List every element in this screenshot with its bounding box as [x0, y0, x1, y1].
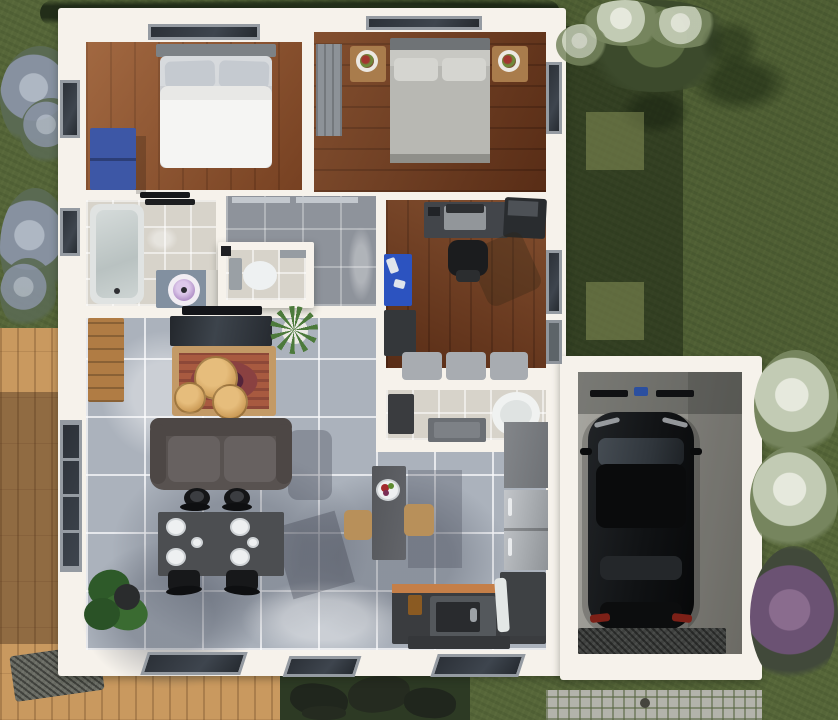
fruit-plum — [383, 490, 389, 496]
sofa-back — [150, 418, 292, 436]
desk-printer-top — [446, 204, 484, 213]
garage-entry-grate — [578, 628, 726, 654]
sofa-shadow — [288, 430, 332, 500]
corner-cabinet-top — [508, 200, 539, 217]
window-bottom-3 — [430, 654, 525, 677]
nightstand-right-flowers — [502, 54, 516, 68]
bed2-pillow-right — [442, 58, 486, 81]
tree-shade — [700, 18, 762, 72]
window-right-office — [546, 250, 562, 314]
plate-small-1 — [191, 537, 203, 548]
window-left-bedroom1 — [60, 80, 80, 138]
side-table-dark — [384, 310, 416, 356]
fruit-lime — [388, 483, 394, 489]
plant-stand-leaves — [270, 306, 318, 354]
car-mirror-right — [690, 448, 702, 455]
dining-chair-top-2-back — [222, 503, 252, 511]
sofa-seat-right — [224, 436, 276, 482]
plate-4 — [230, 548, 250, 566]
bed1-pillow-right — [219, 60, 270, 89]
wc-shelf — [280, 250, 306, 258]
window-light-on-grass-1 — [586, 112, 644, 170]
car-windshield — [598, 438, 684, 466]
window-top-bedroom2 — [366, 16, 482, 30]
bush-left-2b — [0, 258, 56, 330]
window-left-living — [60, 420, 82, 572]
dresser-drawer-line — [90, 158, 136, 161]
toilet-tank — [229, 258, 242, 290]
tool-bar-1 — [590, 390, 628, 397]
kitchen-faucet — [470, 608, 477, 622]
bush-right-white-2 — [750, 446, 838, 554]
vanity-side — [206, 270, 218, 308]
car-mirror-left — [580, 448, 592, 455]
sink-drain — [181, 287, 187, 293]
tv-screen — [182, 306, 262, 315]
dresser-shadow — [136, 136, 146, 194]
bed2-footboard — [390, 154, 490, 163]
office-chair-base — [456, 270, 480, 282]
bench-cushion-1 — [402, 352, 442, 380]
shower-tray-inner — [434, 422, 480, 438]
nightstand-left-flowers — [360, 54, 374, 68]
tv-console — [170, 316, 272, 346]
window-left-bathroom — [60, 208, 80, 256]
bookshelf — [88, 318, 124, 402]
bush-right-purple — [750, 546, 838, 688]
bench-cushion-2 — [446, 352, 486, 380]
wardrobe — [316, 44, 342, 136]
toilet-bowl — [243, 261, 277, 290]
dining-chair-top-1-seat — [190, 491, 204, 502]
hallway-beam-1 — [232, 197, 290, 203]
dining-chair-top-2-seat — [230, 491, 244, 502]
plate-1 — [166, 518, 186, 536]
bed1-duvet-fold — [160, 86, 272, 100]
fridge-handle-2 — [508, 538, 512, 556]
laundry-unit — [388, 394, 414, 434]
bed2-pillow-left — [394, 58, 438, 81]
window-bottom-1 — [140, 652, 247, 675]
bar-stool-left — [344, 510, 372, 540]
tool-bar-2 — [656, 390, 694, 397]
towel-rail-1 — [140, 192, 190, 198]
car-roof — [596, 464, 686, 528]
hallway-sunlight — [348, 226, 374, 302]
hallway-beam-2 — [296, 197, 358, 203]
sofa-arm-right — [276, 424, 292, 484]
coffee-table-2 — [174, 382, 206, 414]
window-top-bedroom1 — [148, 24, 260, 40]
bathroom-sunpatch — [146, 226, 178, 252]
cobblestone-driveway — [546, 690, 762, 720]
bathtub-drain — [114, 288, 120, 294]
window-bottom-2 — [283, 656, 362, 677]
car-trunk — [600, 602, 682, 628]
car-rear-window — [600, 556, 682, 580]
tree-blossom-3 — [556, 24, 608, 66]
window-right-bedroom2 — [546, 62, 562, 134]
towel-rail-2 — [145, 199, 195, 205]
wc-corner-box — [221, 246, 231, 256]
fridge-door-split — [504, 528, 548, 531]
sofa-seat-left — [168, 436, 220, 482]
cutting-board — [408, 595, 422, 615]
blinds-right-office — [546, 320, 562, 364]
desk-item — [428, 207, 440, 216]
dining-chair-top-1-back — [180, 503, 210, 511]
living-sunlight-1 — [240, 580, 410, 660]
coffee-table-3 — [212, 384, 248, 420]
sofa-arm-left — [150, 424, 166, 484]
plate-small-2 — [247, 537, 259, 548]
window-light-on-grass-2 — [586, 282, 644, 340]
driveway-drain-dot — [640, 698, 650, 708]
bench-cushion-3 — [490, 352, 528, 380]
bathtub-inner — [96, 210, 138, 298]
kitchen-mat — [408, 636, 510, 649]
floorplan-stage — [0, 0, 838, 720]
bar-stool-right — [404, 504, 434, 536]
floor-plant-pot — [114, 584, 140, 610]
fridge-handle-1 — [508, 498, 512, 516]
bed1-pillow-left — [165, 60, 216, 89]
stepping-stone-4 — [302, 706, 346, 720]
plate-2 — [230, 518, 250, 536]
tall-cabinet — [504, 422, 548, 488]
tool-blue — [634, 387, 648, 396]
plate-3 — [166, 548, 186, 566]
